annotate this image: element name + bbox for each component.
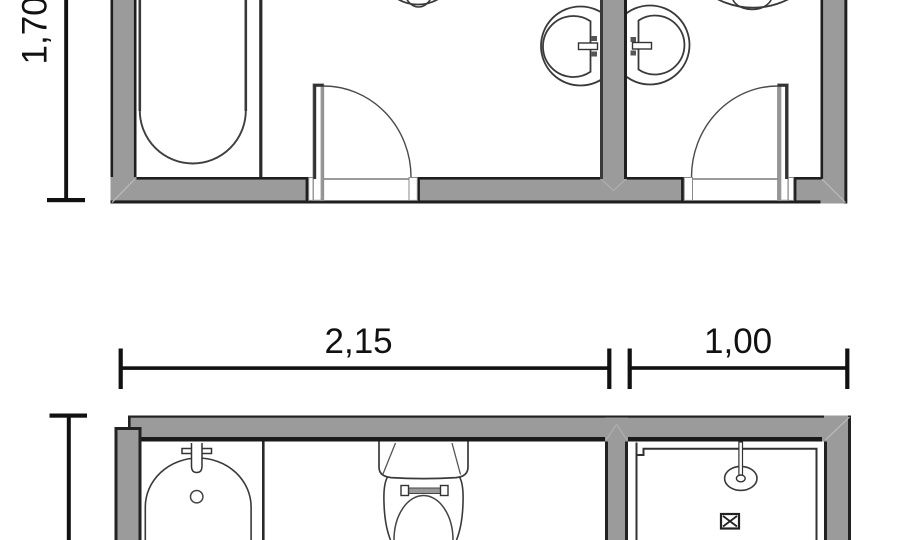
svg-text:1,70: 1,70 (16, 0, 55, 65)
svg-text:1,00: 1,00 (704, 322, 772, 361)
svg-text:2,15: 2,15 (325, 322, 393, 361)
